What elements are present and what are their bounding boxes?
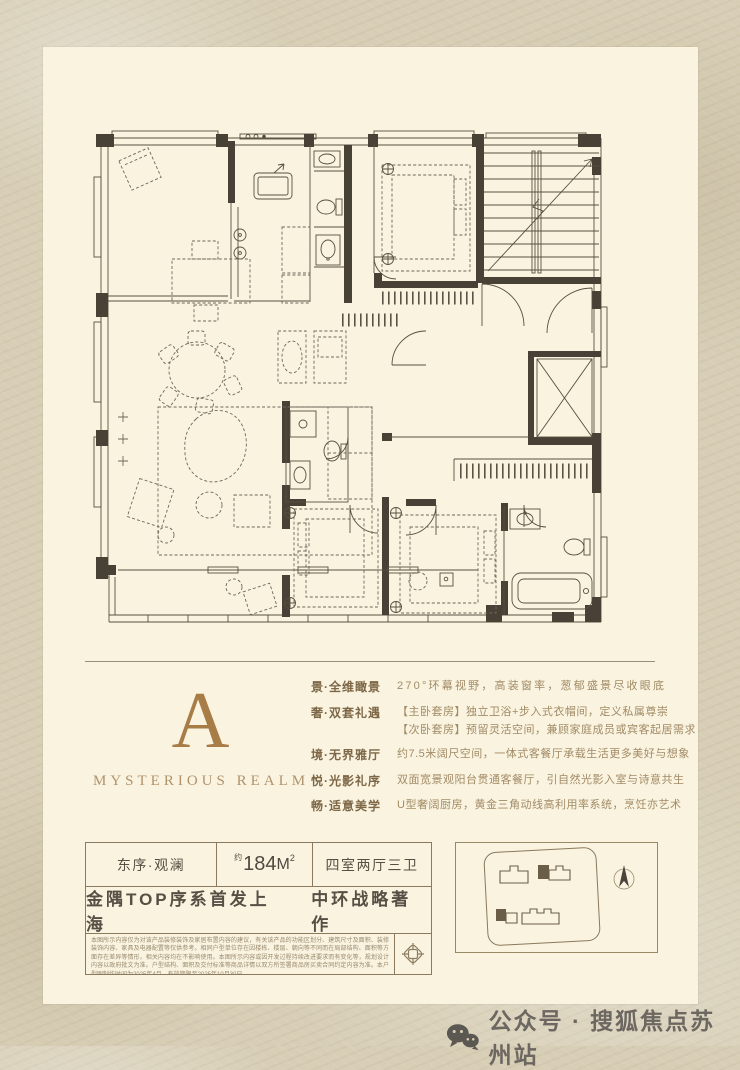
brand-emblem-cell bbox=[395, 934, 431, 974]
tagline-right: 中环战略著作 bbox=[311, 885, 431, 935]
site-plan-drawing bbox=[456, 843, 657, 952]
tagline-row: 金隅TOP序系首发上海 中环战略著作 bbox=[86, 887, 431, 934]
area-approx-mark: 约 bbox=[234, 852, 242, 863]
sofa bbox=[185, 410, 247, 481]
dining-set bbox=[158, 331, 243, 414]
poster-panel: A MYSTERIOUS REALM 景·全维瞰景270°环幕视野，高装窗率，葱… bbox=[43, 47, 698, 1004]
feature-description: 【主卧套房】独立卫浴+步入式衣帽间，定义私属尊崇【次卧套房】预留灵活空间，兼顾家… bbox=[397, 704, 696, 740]
bedroom3-bed bbox=[294, 509, 378, 607]
plan-interior bbox=[108, 135, 599, 616]
balcony-table bbox=[226, 579, 242, 595]
unit-letter: A bbox=[93, 681, 308, 761]
building-footprint bbox=[500, 866, 528, 883]
master-bath-fixtures bbox=[504, 507, 592, 615]
feature-description: 270°环幕视野，高装窗率，葱郁盛景尽收眼底 bbox=[397, 678, 666, 697]
unit-layout: 四室两厅三卫 bbox=[313, 843, 431, 886]
unit-logo-subtitle: MYSTERIOUS REALM bbox=[93, 773, 308, 790]
plan-furniture bbox=[118, 148, 496, 615]
poster-page: { "theme": {"bg":"#d7ceb5","panel":"#f9f… bbox=[0, 0, 740, 1046]
disclaimer-text: 本图所示内容仅为对该产品装修装饰及家居布置内容的建议，有关该产品的功能区划分、建… bbox=[86, 934, 395, 974]
feature-label: 畅·适意美学 bbox=[311, 797, 397, 816]
feature-row: 畅·适意美学U型奢阔厨房，黄金三角动线高利用率系统，烹饪亦艺术 bbox=[311, 797, 657, 816]
feature-row: 境·无界雅厅约7.5米阔尺空间，一体式客餐厅承载生活更多美好与想象 bbox=[311, 746, 657, 765]
feature-description: 双面宽景观阳台贯通客餐厅，引自然光影入室与诗意共生 bbox=[397, 772, 685, 791]
feature-label: 悦·光影礼序 bbox=[311, 772, 397, 791]
building-footprint bbox=[522, 909, 559, 924]
feature-description: 约7.5米阔尺空间，一体式客餐厅承载生活更多美好与想象 bbox=[397, 746, 690, 765]
footer: 公众号 · 搜狐焦点苏州站 bbox=[446, 1002, 740, 1070]
bathroom-upper-fixtures bbox=[314, 151, 342, 265]
highlighted-unit bbox=[538, 865, 549, 879]
wechat-icon bbox=[446, 1021, 480, 1052]
site-boundary bbox=[484, 847, 601, 946]
unit-info-table: 东序·观澜 约184M2 四室两厅三卫 金隅TOP序系首发上海 中环战略著作 本… bbox=[85, 842, 432, 975]
feature-label: 奢·双套礼遇 bbox=[311, 704, 397, 740]
feature-row: 奢·双套礼遇【主卧套房】独立卫浴+步入式衣帽间，定义私属尊崇【次卧套房】预留灵活… bbox=[311, 704, 657, 740]
plan-walls bbox=[96, 134, 601, 622]
section-divider bbox=[85, 661, 655, 662]
living-rug bbox=[158, 407, 372, 555]
tagline-left: 金隅TOP序系首发上海 bbox=[86, 885, 289, 935]
study-armchair bbox=[119, 148, 161, 190]
bedroom2-bed bbox=[382, 165, 470, 271]
feature-label: 景·全维瞰景 bbox=[311, 678, 397, 697]
knot-emblem-icon bbox=[400, 941, 426, 967]
feature-label: 境·无界雅厅 bbox=[311, 746, 397, 765]
unit-logo-block: A MYSTERIOUS REALM bbox=[93, 681, 308, 790]
unit-name: 东序·观澜 bbox=[86, 843, 217, 886]
feature-description: U型奢阔厨房，黄金三角动线高利用率系统，烹饪亦艺术 bbox=[397, 797, 681, 816]
floor-plan bbox=[88, 107, 653, 652]
feature-row: 景·全维瞰景270°环幕视野，高装窗率，葱郁盛景尽收眼底 bbox=[311, 678, 657, 697]
unit-area: 约184M2 bbox=[217, 843, 313, 886]
disclaimer-row: 本图所示内容仅为对该产品装修装饰及家居布置内容的建议，有关该产品的功能区划分、建… bbox=[86, 934, 431, 974]
building-footprint bbox=[549, 866, 570, 880]
site-plan bbox=[455, 842, 658, 953]
north-compass-icon bbox=[614, 865, 634, 889]
staircase bbox=[484, 151, 599, 273]
footer-label: 公众号 · 搜狐焦点苏州站 bbox=[489, 1002, 740, 1070]
feature-row: 悦·光影礼序双面宽景观阳台贯通客餐厅，引自然光影入室与诗意共生 bbox=[311, 772, 657, 791]
elevator-shaft bbox=[537, 359, 592, 437]
highlighted-unit bbox=[496, 909, 506, 921]
kitchen-fixtures bbox=[234, 135, 292, 260]
feature-list: 景·全维瞰景270°环幕视野，高装窗率，葱郁盛景尽收眼底奢·双套礼遇【主卧套房】… bbox=[311, 678, 657, 823]
master-bed bbox=[400, 515, 496, 613]
unit-info-row: 东序·观澜 约184M2 四室两厅三卫 bbox=[86, 843, 431, 887]
building-footprint bbox=[506, 913, 517, 923]
